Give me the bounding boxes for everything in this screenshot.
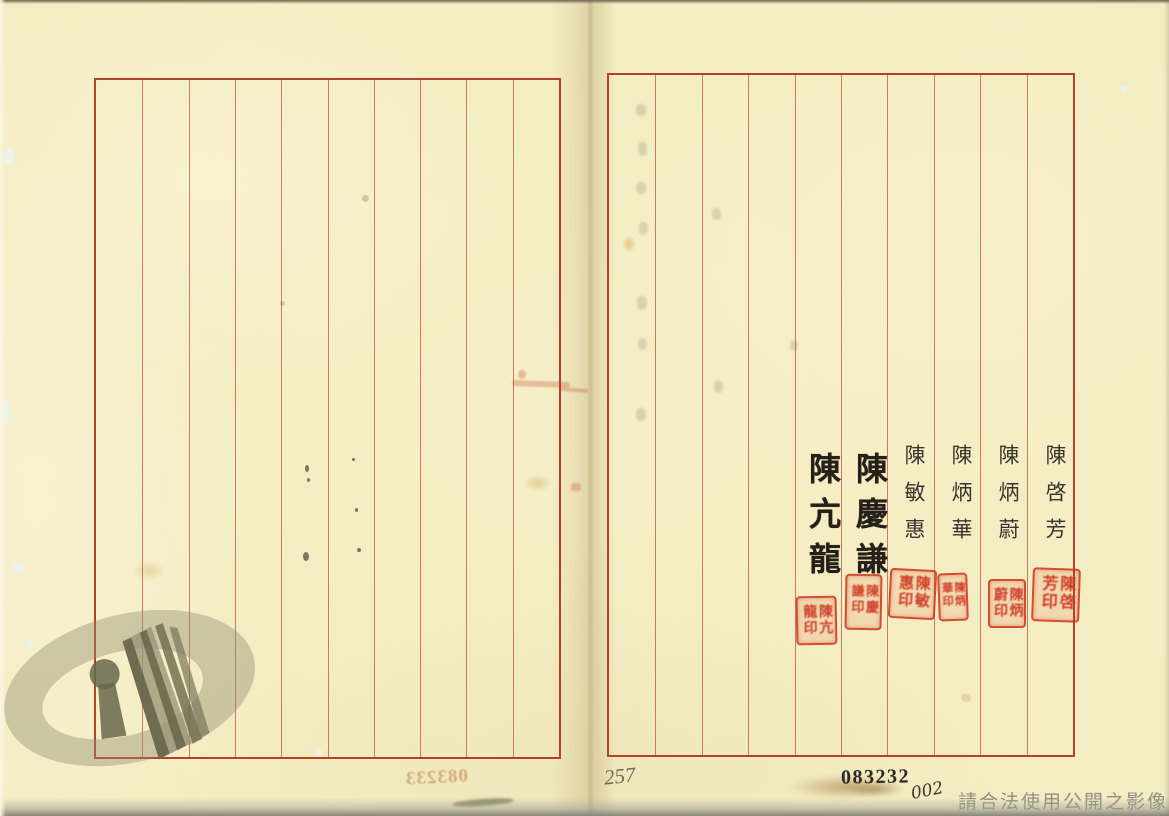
seal-text: 陳啓芳印 (1037, 574, 1074, 615)
red-seal-stamp: 陳亢龍印 (796, 596, 838, 646)
column-rule-line (374, 80, 375, 757)
red-seal-stamp: 陳炳蔚印 (988, 579, 1026, 628)
signature-name: 陳炳華 (946, 444, 976, 555)
column-rule-line (980, 75, 981, 755)
column-rule-line (841, 75, 842, 755)
column-rule-line (466, 80, 467, 757)
signature-name-brush: 陳慶謙 (847, 452, 893, 587)
scan-canvas: 陳啓芳 陳炳蔚 陳炳華 陳敏惠 陳慶謙 陳亢龍 陳啓芳印 陳炳蔚印 陳炳華印 陳… (0, 0, 1169, 816)
red-seal-stamp: 陳炳華印 (937, 572, 969, 621)
column-rule-line (328, 80, 329, 757)
seal-text: 陳炳華印 (940, 582, 966, 613)
column-rule-line (513, 80, 514, 757)
right-page-frame (607, 73, 1075, 757)
column-rule-line (189, 80, 190, 757)
pencil-page-note: 257 (603, 762, 637, 790)
scan-edge-top (0, 0, 1169, 4)
red-seal-stamp: 陳啓芳印 (1031, 567, 1081, 623)
red-ink-dot (571, 483, 581, 491)
fold-crease-line (589, 0, 592, 816)
column-rule-line (748, 75, 749, 755)
seal-text: 陳亢龍印 (801, 603, 833, 638)
paper-fleck (1120, 86, 1127, 93)
column-rule-line (420, 80, 421, 757)
paper-fleck (12, 562, 24, 572)
column-rule-line (281, 80, 282, 757)
column-rule-line (235, 80, 236, 757)
signature-name: 陳敏惠 (899, 444, 929, 555)
bleedthrough-number: 083233 (404, 765, 468, 790)
seal-text: 陳敏惠印 (895, 574, 931, 614)
column-rule-line (795, 75, 796, 755)
signature-name: 陳啓芳 (1040, 444, 1070, 555)
archive-number-stamp: 083232 (841, 765, 910, 789)
column-rule-line (1027, 75, 1028, 755)
scan-edge-left (0, 0, 6, 816)
seal-text: 陳炳蔚印 (991, 587, 1022, 621)
column-rule-line (142, 80, 143, 757)
paper-fleck (26, 640, 34, 649)
red-seal-stamp: 陳慶謙印 (845, 574, 883, 631)
scan-edge-bottom (0, 798, 1169, 816)
signature-name-brush: 陳亢龍 (800, 452, 846, 587)
column-rule-line (655, 75, 656, 755)
scan-edge-right (1164, 0, 1169, 816)
column-rule-line (934, 75, 935, 755)
red-seal-stamp: 陳敏惠印 (888, 568, 938, 620)
left-page-frame (94, 78, 561, 759)
column-rule-line (702, 75, 703, 755)
column-rule-line (887, 75, 888, 755)
seal-text: 陳慶謙印 (849, 584, 879, 621)
signature-name: 陳炳蔚 (993, 444, 1023, 555)
